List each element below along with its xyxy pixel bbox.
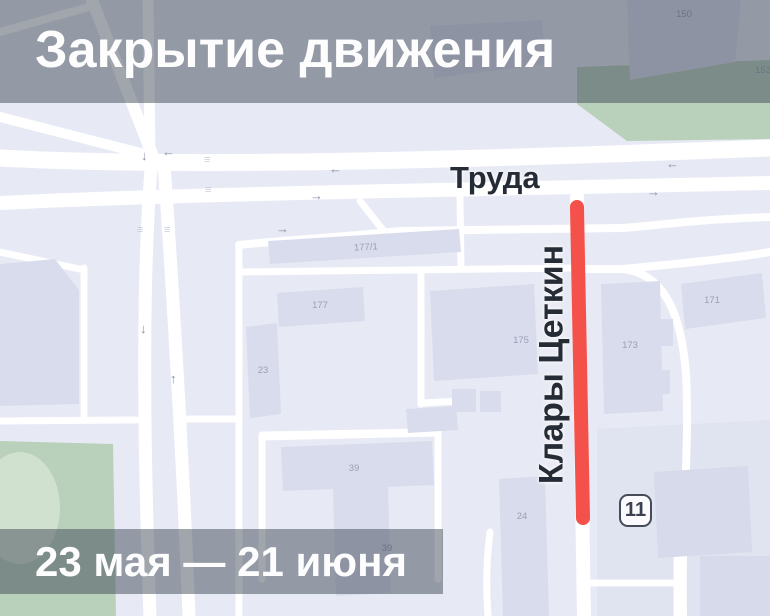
- building-label: 24: [517, 511, 528, 522]
- title-banner: Закрытие движения: [0, 0, 770, 103]
- street-label-truda: Труда: [450, 160, 540, 196]
- arrow-down-icon: ↓: [141, 148, 148, 163]
- crosswalk-icon: ≡: [164, 224, 170, 236]
- building-label: 171: [704, 295, 720, 306]
- arrow-right-icon: →: [276, 221, 289, 236]
- crosswalk-icon: ≡: [137, 224, 143, 236]
- crosswalk-icon: ≡: [204, 154, 210, 166]
- road-closure-announcement-image: ← ← ← → → → ↓ ↓ ↑ ≡ ≡ ≡ ≡ 150 152 177/1 …: [0, 0, 770, 616]
- arrow-left-icon: ←: [162, 144, 175, 159]
- building-label: 39: [349, 463, 360, 474]
- date-range-text: 23 мая — 21 июня: [35, 538, 407, 585]
- address-badge-number: 11: [625, 499, 646, 522]
- arrow-right-icon: →: [647, 184, 660, 199]
- arrow-left-icon: ←: [329, 161, 342, 176]
- page-title: Закрытие движения: [35, 21, 555, 79]
- building-label: 177: [312, 300, 328, 311]
- building-label: 173: [622, 340, 638, 351]
- building-label: 177/1: [354, 241, 378, 253]
- street-label-klary-tsetkin: Клары Цеткин: [533, 230, 572, 500]
- arrow-right-icon: →: [310, 188, 323, 203]
- arrow-up-icon: ↑: [170, 371, 177, 386]
- arrow-left-icon: ←: [666, 156, 679, 171]
- crosswalk-icon: ≡: [205, 184, 211, 196]
- building-label: 23: [258, 365, 269, 376]
- building-label: 175: [513, 335, 529, 346]
- date-range-banner: 23 мая — 21 июня: [0, 529, 443, 594]
- arrow-down-icon: ↓: [140, 321, 147, 336]
- address-badge: 11: [619, 494, 652, 527]
- closed-road-segment-highlight: [577, 207, 583, 518]
